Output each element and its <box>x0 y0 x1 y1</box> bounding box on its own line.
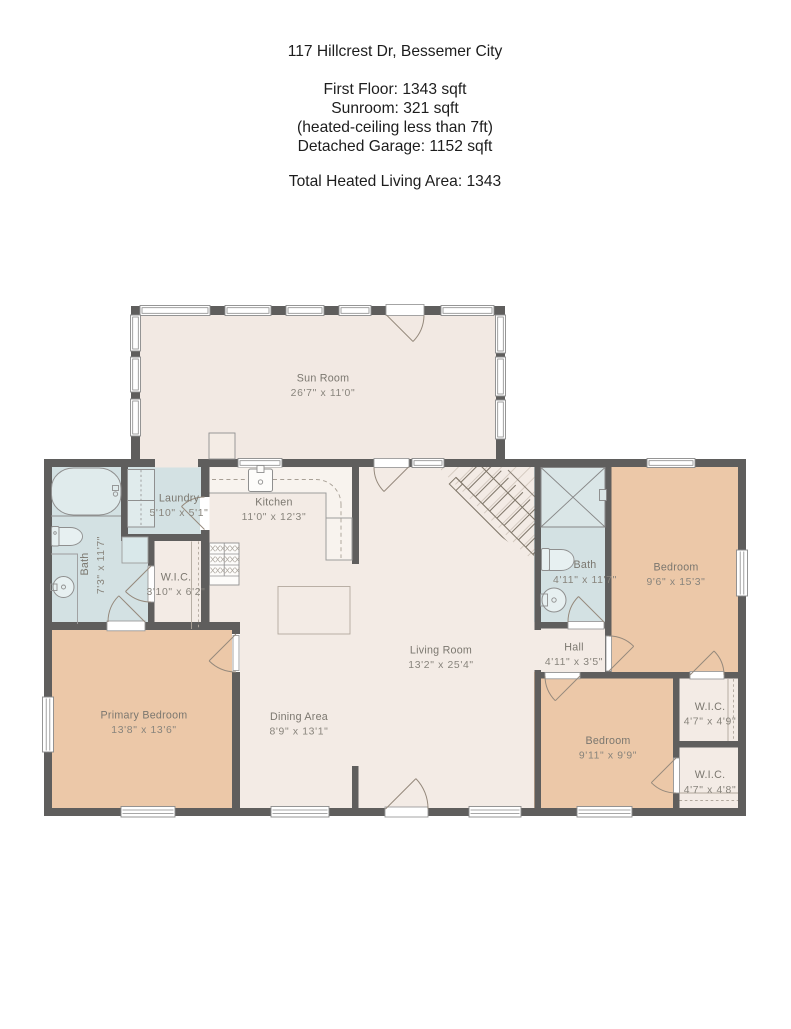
svg-text:Bath: Bath <box>574 559 597 571</box>
svg-text:9'6" x 15'3": 9'6" x 15'3" <box>646 577 705 588</box>
svg-text:13'2" x 25'4": 13'2" x 25'4" <box>408 660 473 671</box>
svg-text:Bath: Bath <box>79 553 91 576</box>
svg-text:4'11" x 11'7": 4'11" x 11'7" <box>553 575 617 586</box>
svg-text:Hall: Hall <box>564 642 583 654</box>
svg-text:4'7" x 4'9": 4'7" x 4'9" <box>684 717 737 728</box>
svg-text:Bedroom: Bedroom <box>653 562 698 574</box>
svg-text:First Floor: 1343 sqft: First Floor: 1343 sqft <box>324 81 468 98</box>
svg-text:Bedroom: Bedroom <box>585 735 630 747</box>
svg-text:11'0" x 12'3": 11'0" x 12'3" <box>242 512 307 523</box>
svg-text:Sunroom: 321 sqft: Sunroom: 321 sqft <box>331 100 459 117</box>
svg-text:W.I.C.: W.I.C. <box>695 769 726 781</box>
svg-text:(heated-ceiling less than 7ft): (heated-ceiling less than 7ft) <box>297 119 493 136</box>
svg-text:Primary Bedroom: Primary Bedroom <box>101 710 188 722</box>
svg-text:8'9" x 13'1": 8'9" x 13'1" <box>269 726 328 737</box>
svg-text:117 Hillcrest Dr, Bessemer Cit: 117 Hillcrest Dr, Bessemer City <box>288 43 503 60</box>
svg-text:W.I.C.: W.I.C. <box>695 701 726 713</box>
svg-text:5'10" x 5'1": 5'10" x 5'1" <box>149 508 208 519</box>
svg-text:4'7" x 4'8": 4'7" x 4'8" <box>684 785 737 796</box>
svg-text:13'8" x 13'6": 13'8" x 13'6" <box>111 725 176 736</box>
svg-text:Living Room: Living Room <box>410 645 472 657</box>
svg-text:4'11" x 3'5": 4'11" x 3'5" <box>545 657 603 668</box>
svg-text:Total Heated Living Area: 1343: Total Heated Living Area: 1343 <box>289 173 501 190</box>
svg-text:3'10" x 6'2": 3'10" x 6'2" <box>146 587 205 598</box>
svg-text:Kitchen: Kitchen <box>255 497 292 509</box>
svg-text:Sun Room: Sun Room <box>297 372 350 384</box>
svg-text:7'3" x 11'7": 7'3" x 11'7" <box>96 536 107 594</box>
svg-text:Dining Area: Dining Area <box>270 711 328 723</box>
svg-text:W.I.C.: W.I.C. <box>161 572 192 584</box>
svg-text:Laundry: Laundry <box>159 493 200 505</box>
svg-text:9'11" x 9'9": 9'11" x 9'9" <box>579 751 637 762</box>
svg-text:Detached Garage: 1152 sqft: Detached Garage: 1152 sqft <box>298 138 493 155</box>
svg-text:26'7" x 11'0": 26'7" x 11'0" <box>291 388 356 399</box>
